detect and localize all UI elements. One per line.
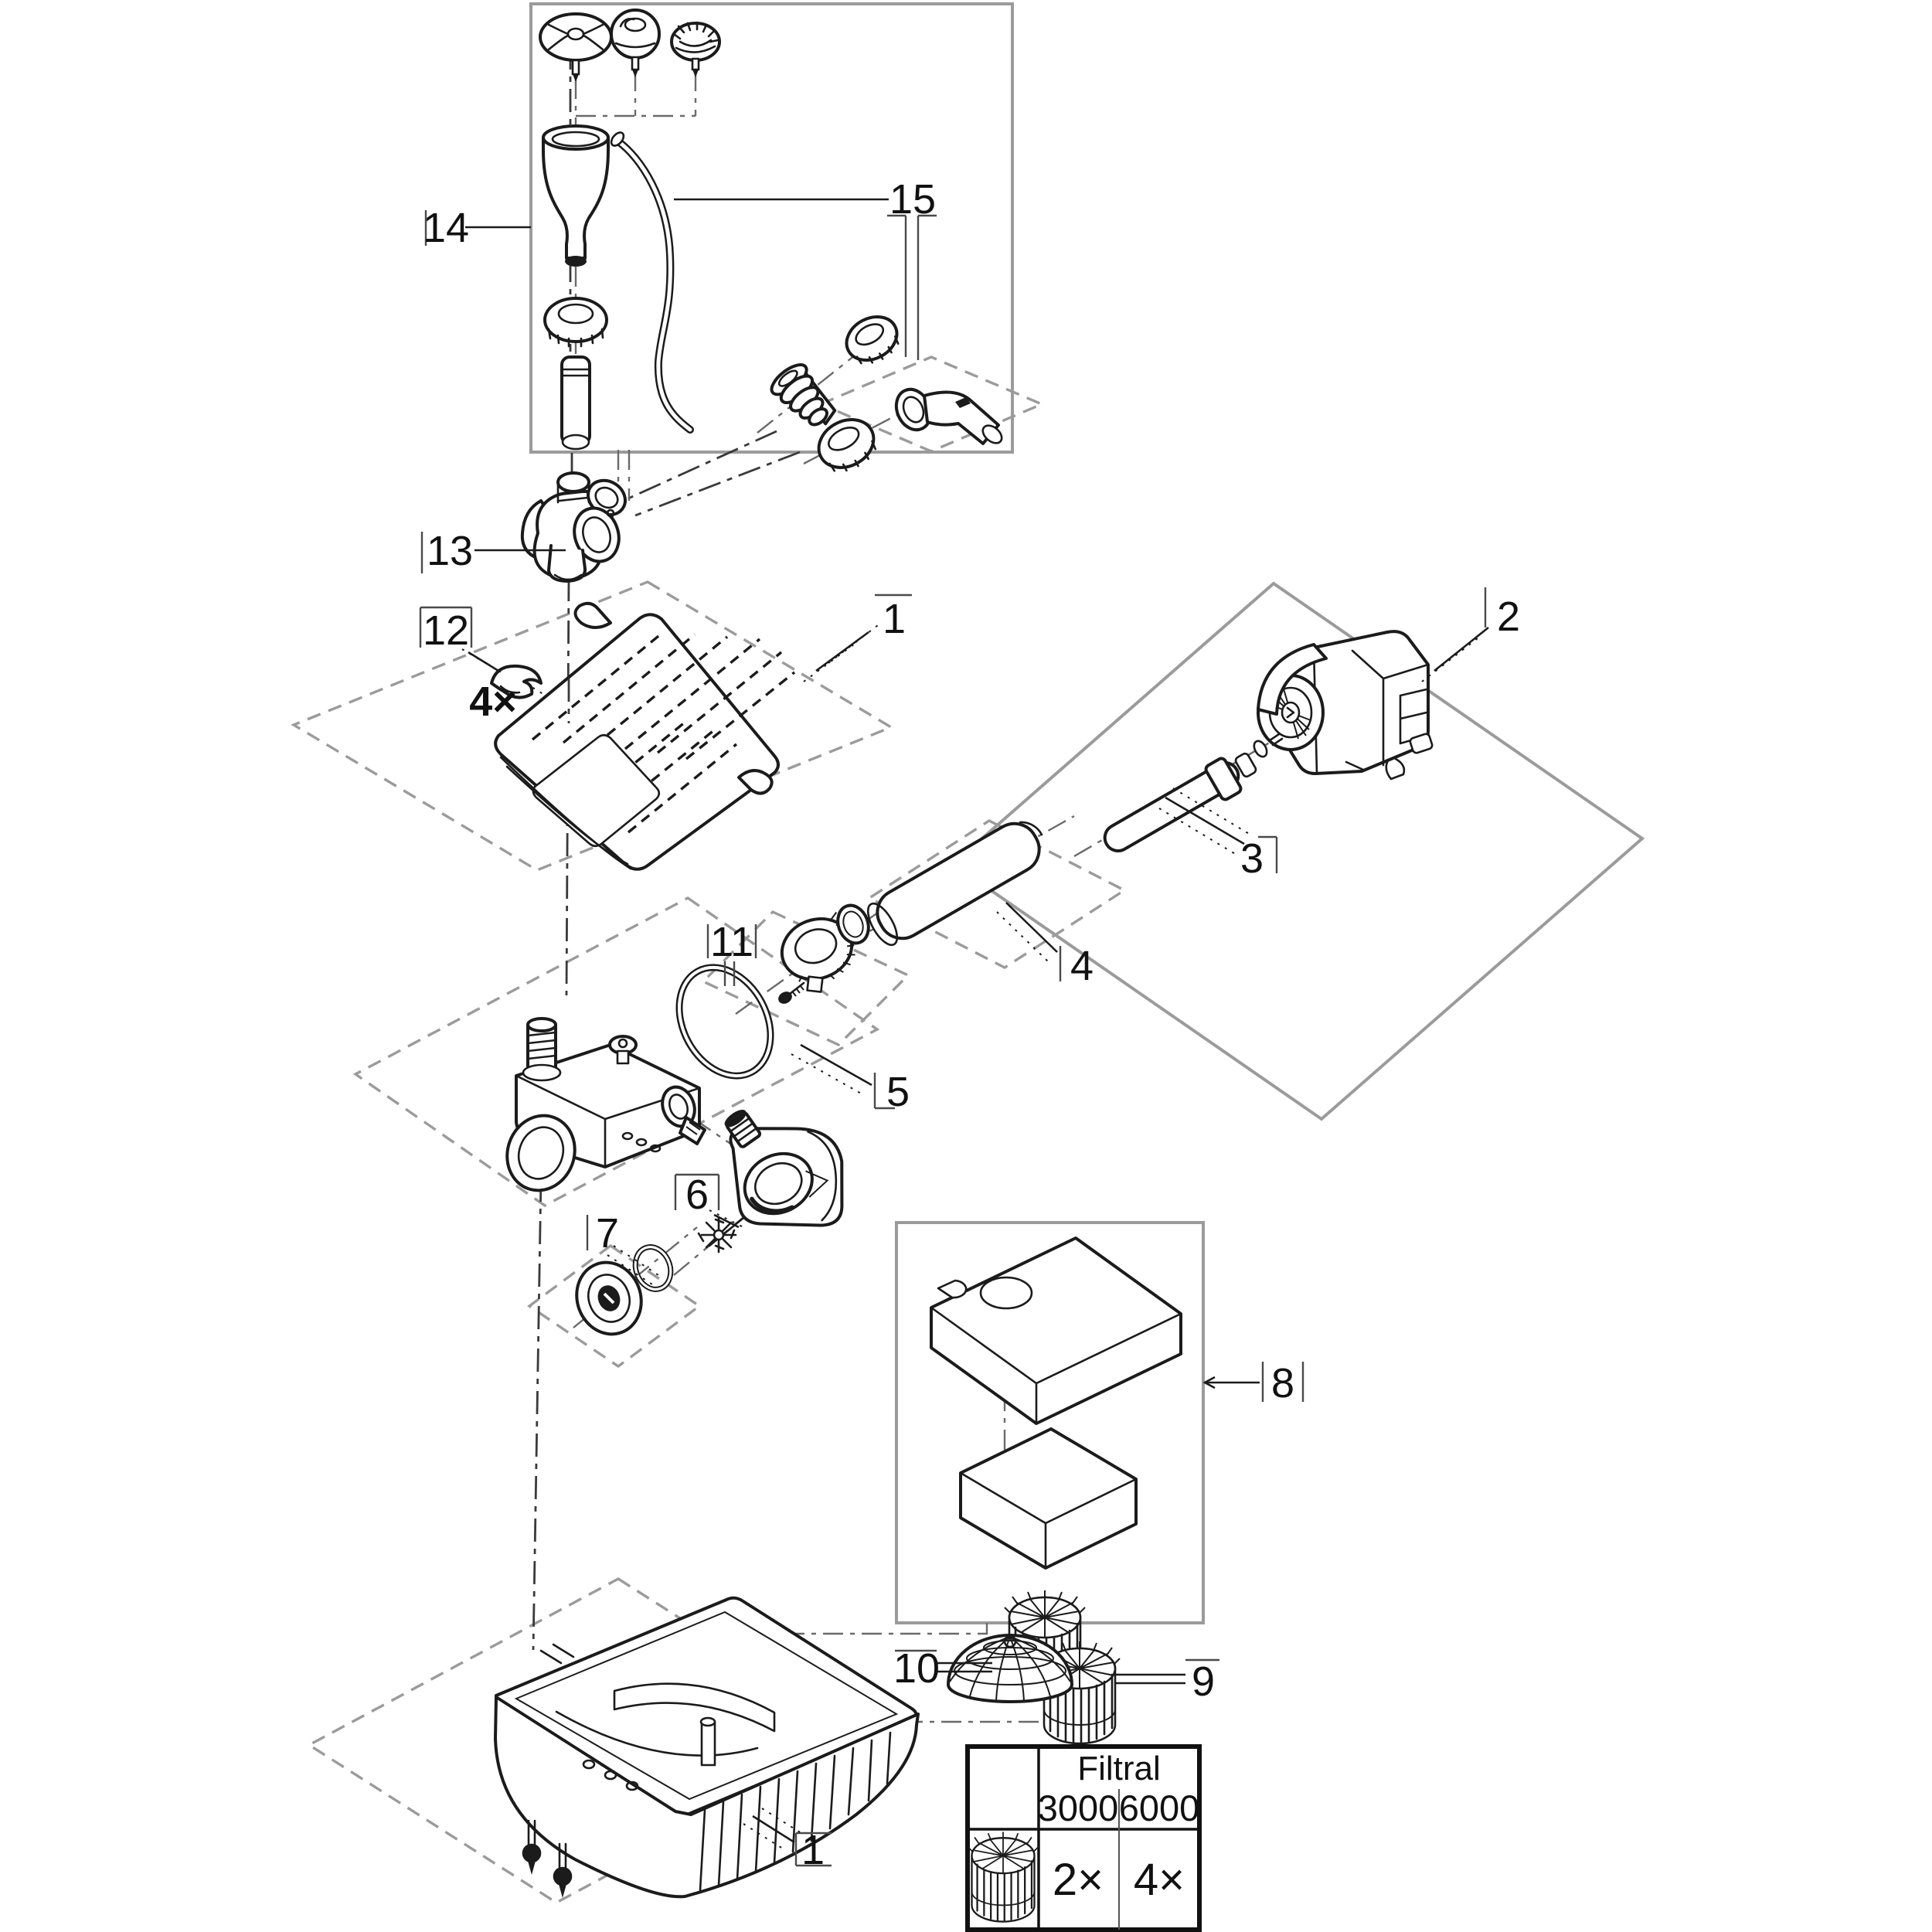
callout-10: 10 <box>893 1645 940 1692</box>
fountain-nozzle-body <box>543 138 608 258</box>
callout-14: 14 <box>423 205 469 251</box>
callout-13: 13 <box>427 528 473 574</box>
three-way-valve <box>522 473 631 581</box>
callout-7: 7 <box>596 1210 619 1257</box>
callout-9: 9 <box>1192 1658 1215 1705</box>
callout-1-top: 1 <box>883 596 906 642</box>
callout-15: 15 <box>889 176 936 223</box>
table-qty-3000: 2× <box>1053 1855 1104 1905</box>
hose-connection-set <box>767 308 1005 479</box>
table-qty-6000: 4× <box>1134 1855 1185 1905</box>
fountain-head-ball-nozzle <box>611 10 659 77</box>
callout-12: 12 <box>423 607 469 654</box>
clip-quantity-label: 4× <box>469 679 517 725</box>
filter-cartridge-icon <box>968 1832 1039 1921</box>
hose <box>609 130 690 430</box>
riser-pipe <box>562 357 590 449</box>
coarse-foam <box>931 1238 1181 1423</box>
outlet-elbow <box>890 384 1005 447</box>
union-nut <box>545 298 607 346</box>
callout-1-bottom: 1 <box>801 1827 825 1873</box>
table-col-6000: 6000 <box>1119 1787 1200 1828</box>
quantity-table: Filtral 3000 6000 2× 4× <box>968 1747 1199 1930</box>
diagram-page: 14 15 13 12 4× 1 2 3 <box>0 0 1932 1932</box>
uvc-filter-head <box>497 1019 705 1200</box>
fine-foam <box>961 1429 1136 1568</box>
callout-2: 2 <box>1497 594 1520 640</box>
callout-5: 5 <box>886 1069 910 1115</box>
glass-cylinder <box>862 815 1048 950</box>
callout-4: 4 <box>1070 943 1094 989</box>
callout-8: 8 <box>1271 1360 1294 1406</box>
fixing-screw <box>777 983 804 1005</box>
table-title: Filtral <box>1077 1750 1161 1787</box>
hose-adapter-nut <box>839 308 906 371</box>
rotor-cover-set <box>566 1242 676 1343</box>
callout-6: 6 <box>685 1172 709 1218</box>
callout-3: 3 <box>1240 835 1264 882</box>
table-col-3000: 3000 <box>1038 1787 1119 1828</box>
filter-foam-set <box>931 1238 1181 1568</box>
callout-11: 11 <box>710 919 753 965</box>
fountain-head-cross-nozzle <box>540 14 611 82</box>
fountain-head-gear-nozzle <box>672 22 719 77</box>
pump-motor <box>1258 631 1433 779</box>
fountain-attachment-set <box>540 10 719 449</box>
exploded-parts-diagram: 14 15 13 12 4× 1 2 3 <box>0 0 1932 1932</box>
pump-housing <box>699 1108 850 1252</box>
impeller <box>699 1218 743 1252</box>
